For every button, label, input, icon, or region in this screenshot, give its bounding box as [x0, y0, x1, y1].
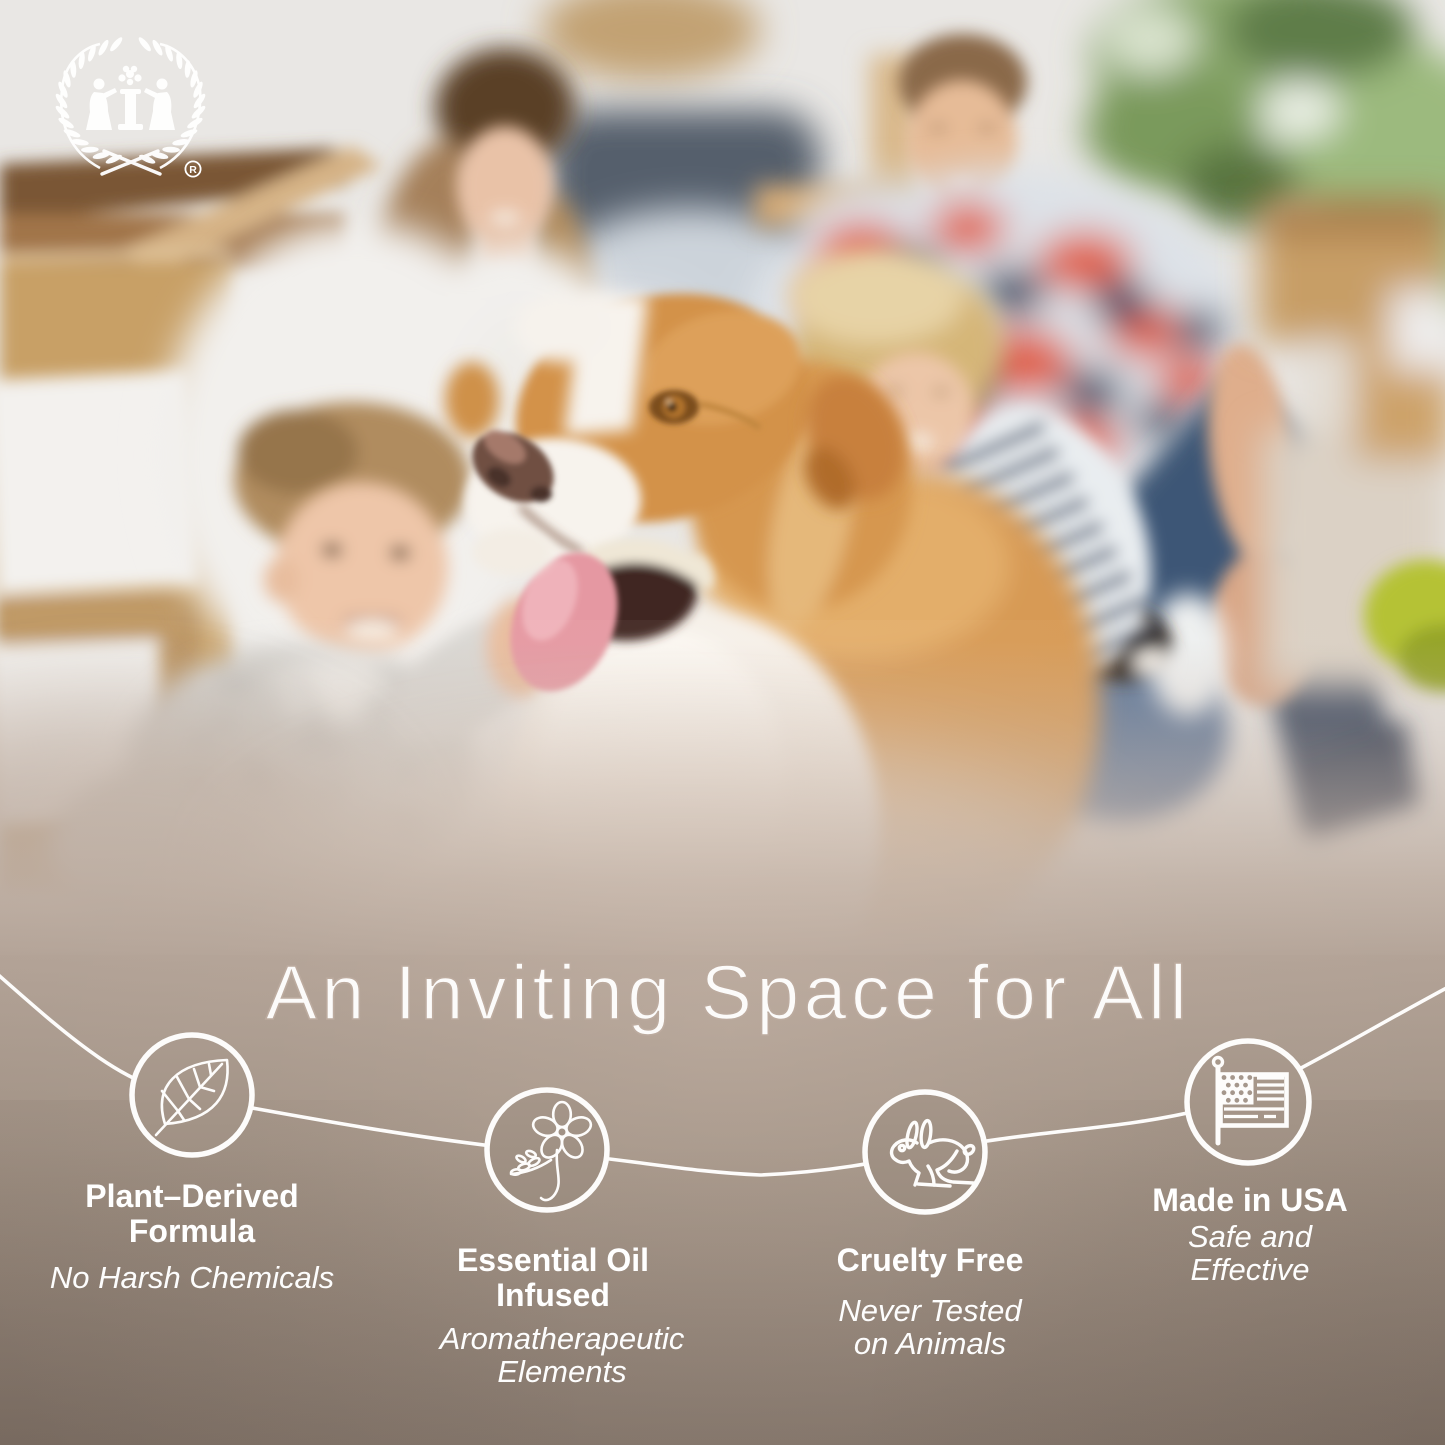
svg-text:R: R: [189, 164, 197, 176]
